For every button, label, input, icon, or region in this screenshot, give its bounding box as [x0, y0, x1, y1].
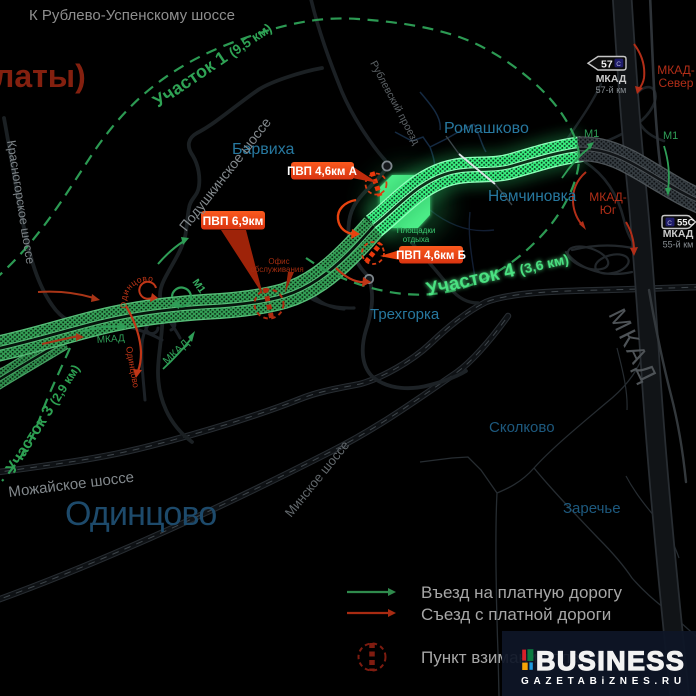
svg-text:латы): латы)	[0, 58, 86, 94]
svg-text:Одинцово: Одинцово	[65, 495, 217, 533]
svg-text:МКАД-: МКАД-	[657, 63, 695, 77]
svg-text:57: 57	[601, 59, 613, 71]
svg-text:Немчиновка: Немчиновка	[488, 188, 577, 205]
svg-text:57-й км: 57-й км	[596, 85, 627, 95]
svg-text:Заречье: Заречье	[563, 500, 621, 517]
svg-text:55-й км: 55-й км	[663, 240, 694, 250]
svg-text:ПВП 4,6км Б: ПВП 4,6км Б	[396, 250, 466, 262]
svg-text:Трехгорка: Трехгорка	[370, 306, 440, 323]
svg-text:МКАД: МКАД	[596, 73, 627, 85]
svg-text:М1: М1	[663, 130, 678, 142]
svg-text:Съезд с платной дороги: Съезд с платной дороги	[421, 605, 611, 624]
svg-text:Рублевский проезд: Рублевский проезд	[367, 59, 421, 147]
svg-text:ПВП 4,6км А: ПВП 4,6км А	[287, 166, 357, 178]
svg-text:обслуживания: обслуживания	[250, 265, 303, 274]
svg-text:МКАД: МКАД	[161, 337, 192, 367]
svg-text:Въезд на платную дорогу: Въезд на платную дорогу	[421, 583, 623, 602]
svg-text:Юг: Юг	[600, 203, 617, 217]
svg-text:МКАД: МКАД	[663, 228, 694, 240]
svg-text:отдыха: отдыха	[403, 235, 430, 244]
svg-text:Сколково: Сколково	[489, 419, 555, 436]
svg-text:ПВП 6,9км: ПВП 6,9км	[203, 214, 264, 228]
svg-text:Север: Север	[659, 76, 694, 90]
svg-text:Красногорское шоссе: Красногорское шоссе	[4, 139, 37, 265]
svg-text:Одинцово: Одинцово	[124, 346, 141, 389]
svg-text:GAZETABiZNES.RU: GAZETABiZNES.RU	[521, 676, 686, 687]
svg-text:C: C	[667, 220, 672, 227]
svg-text:М1: М1	[584, 128, 599, 140]
svg-text:C: C	[616, 61, 621, 68]
svg-text:Ромашково: Ромашково	[444, 120, 529, 137]
svg-text:Участок 1 (9,5 км): Участок 1 (9,5 км)	[149, 17, 275, 111]
svg-text:К Рублево-Успенскому шоссе: К Рублево-Успенскому шоссе	[29, 7, 235, 24]
svg-text:Площадки: Площадки	[397, 226, 436, 235]
svg-text:55С: 55С	[677, 218, 695, 229]
svg-text:МКАД: МКАД	[96, 333, 125, 346]
svg-text:BUSINESS: BUSINESS	[536, 646, 685, 676]
svg-text:МКАД-: МКАД-	[589, 190, 627, 204]
svg-text:Минское шоссе: Минское шоссе	[282, 438, 353, 520]
svg-text:М1: М1	[190, 277, 208, 296]
